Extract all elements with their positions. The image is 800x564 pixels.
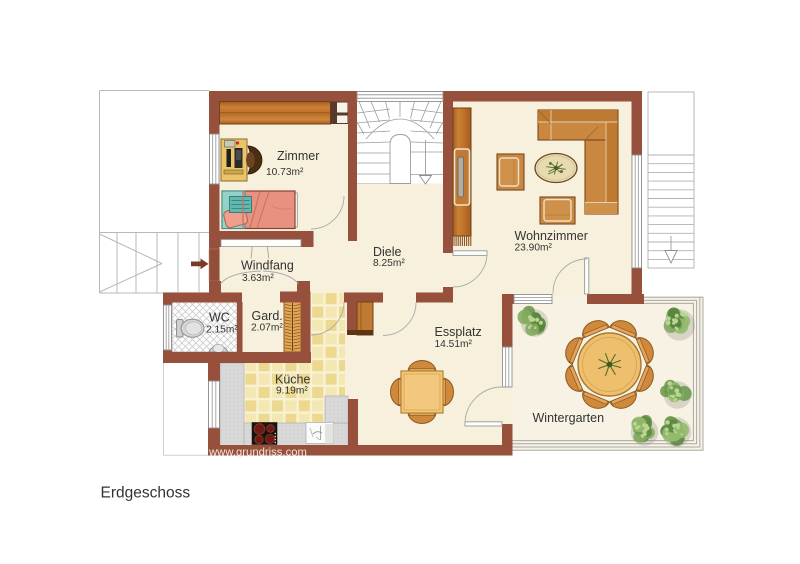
svg-text:23.90m²: 23.90m²: [515, 243, 553, 254]
svg-text:Essplatz: Essplatz: [435, 325, 482, 339]
svg-text:Wohnzimmer: Wohnzimmer: [515, 229, 588, 243]
svg-text:www.grundriss.com: www.grundriss.com: [208, 447, 307, 459]
svg-text:14.51m²: 14.51m²: [435, 339, 473, 350]
svg-text:Küche: Küche: [275, 373, 310, 387]
svg-text:Wintergarten: Wintergarten: [533, 411, 605, 425]
svg-text:Gard.: Gard.: [252, 309, 283, 323]
svg-text:10.73m²: 10.73m²: [266, 167, 304, 178]
svg-text:Erdgeschoss: Erdgeschoss: [101, 485, 191, 502]
svg-text:Windfang: Windfang: [241, 259, 294, 273]
svg-text:3.63m²: 3.63m²: [242, 273, 274, 284]
svg-text:2.07m²: 2.07m²: [251, 323, 283, 334]
svg-text:2.15m²: 2.15m²: [206, 325, 238, 336]
svg-text:WC: WC: [209, 311, 230, 325]
svg-text:8.25m²: 8.25m²: [373, 258, 405, 269]
svg-text:Diele: Diele: [373, 245, 402, 259]
svg-text:9.19m²: 9.19m²: [276, 386, 308, 397]
svg-text:Zimmer: Zimmer: [277, 149, 319, 163]
